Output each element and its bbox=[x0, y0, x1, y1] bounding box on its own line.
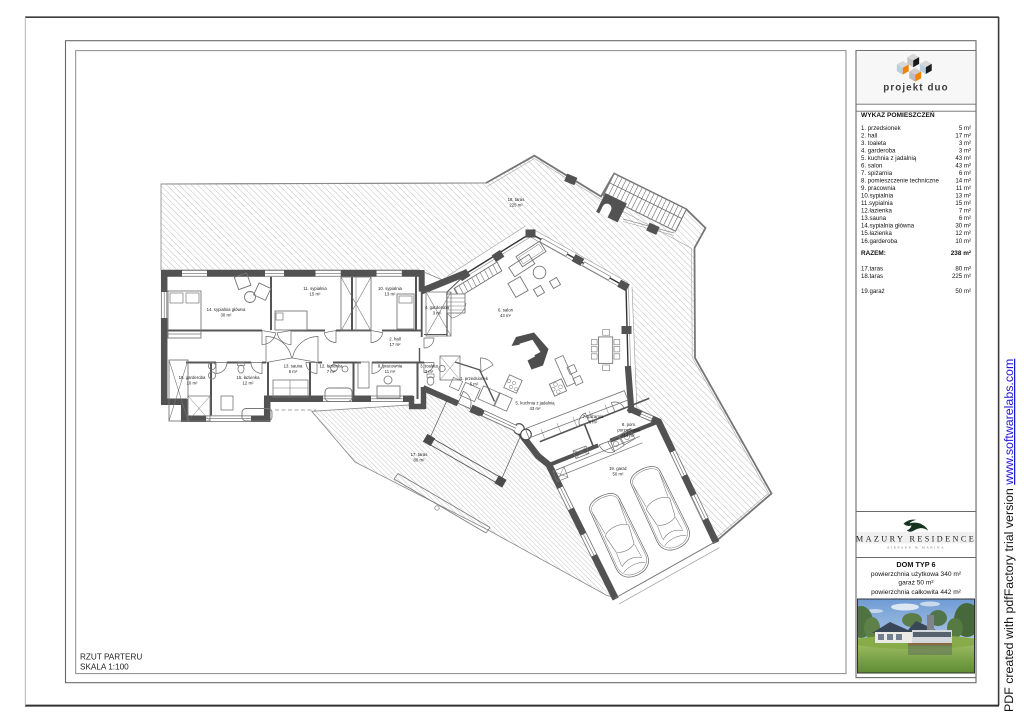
svg-text:5. kuchnia z jadalnią: 5. kuchnia z jadalnią bbox=[861, 155, 917, 162]
svg-text:6. salon: 6. salon bbox=[498, 308, 514, 313]
svg-text:2. hall: 2. hall bbox=[861, 132, 877, 139]
svg-text:43 m²: 43 m² bbox=[955, 163, 971, 170]
svg-text:12 m²: 12 m² bbox=[955, 230, 971, 237]
svg-text:AIRPARK & MARINA: AIRPARK & MARINA bbox=[887, 546, 945, 550]
svg-text:WYKAZ POMIESZCZEŃ: WYKAZ POMIESZCZEŃ bbox=[861, 110, 935, 119]
svg-text:powierzchnia użytkowa 340 m²: powierzchnia użytkowa 340 m² bbox=[871, 571, 962, 578]
svg-text:43 m²: 43 m² bbox=[500, 313, 512, 318]
svg-text:15 m²: 15 m² bbox=[310, 291, 322, 296]
svg-text:43 m²: 43 m² bbox=[955, 155, 971, 162]
svg-text:10 m²: 10 m² bbox=[187, 380, 199, 385]
svg-text:17 m²: 17 m² bbox=[390, 342, 402, 347]
svg-text:5 m²: 5 m² bbox=[470, 381, 479, 386]
svg-text:17 m²: 17 m² bbox=[955, 132, 971, 139]
svg-text:17. taras: 17. taras bbox=[411, 452, 428, 457]
svg-text:19.garaż: 19.garaż bbox=[861, 288, 885, 295]
svg-text:8. pomieszczenie techniczne: 8. pomieszczenie techniczne bbox=[861, 178, 940, 185]
svg-text:14 m²: 14 m² bbox=[624, 433, 636, 438]
svg-text:15.łazienka: 15.łazienka bbox=[861, 230, 892, 237]
svg-text:projekt duo: projekt duo bbox=[883, 83, 948, 94]
svg-text:10 m²: 10 m² bbox=[955, 238, 971, 245]
svg-text:2. hall: 2. hall bbox=[389, 337, 401, 342]
svg-text:12.łazienka: 12.łazienka bbox=[861, 208, 892, 215]
svg-text:3 m²: 3 m² bbox=[959, 140, 971, 147]
svg-text:6 m²: 6 m² bbox=[589, 419, 598, 424]
svg-text:RAZEM:: RAZEM: bbox=[861, 250, 886, 257]
svg-text:225 m²: 225 m² bbox=[952, 273, 971, 280]
svg-text:18.taras: 18.taras bbox=[861, 273, 883, 280]
svg-text:14 m²: 14 m² bbox=[955, 178, 971, 185]
svg-text:18. taras: 18. taras bbox=[508, 197, 525, 202]
svg-text:SKALA 1:100: SKALA 1:100 bbox=[80, 663, 129, 672]
svg-text:80 m²: 80 m² bbox=[955, 266, 971, 273]
svg-text:11 m²: 11 m² bbox=[956, 185, 971, 192]
svg-text:16.garderoba: 16.garderoba bbox=[861, 238, 898, 245]
svg-text:PDF created with pdfFactory tr: PDF created with pdfFactory trial versio… bbox=[1002, 359, 1016, 712]
svg-text:17.taras: 17.taras bbox=[861, 266, 883, 273]
svg-text:powierzchnia całkowita 442 m²: powierzchnia całkowita 442 m² bbox=[871, 589, 962, 596]
svg-text:porządkowe: porządkowe bbox=[617, 427, 641, 432]
svg-text:13. sauna: 13. sauna bbox=[284, 364, 303, 369]
svg-text:50 m²: 50 m² bbox=[613, 471, 625, 476]
svg-text:5 m²: 5 m² bbox=[959, 125, 971, 132]
svg-text:80 m²: 80 m² bbox=[414, 457, 426, 462]
svg-text:6. salon: 6. salon bbox=[861, 163, 882, 170]
svg-text:4. garderoba: 4. garderoba bbox=[425, 305, 450, 310]
svg-text:7.spiżarnia: 7.spiżarnia bbox=[583, 414, 604, 419]
svg-text:15. łazienka: 15. łazienka bbox=[237, 375, 261, 380]
svg-text:8. pom.: 8. pom. bbox=[622, 422, 636, 427]
svg-text:1. przedsionek: 1. przedsionek bbox=[861, 125, 902, 132]
svg-text:13 m²: 13 m² bbox=[955, 193, 971, 200]
svg-text:14. sypialnia główna: 14. sypialnia główna bbox=[207, 307, 246, 312]
svg-text:16. garderoba: 16. garderoba bbox=[179, 375, 206, 380]
svg-text:43 m²: 43 m² bbox=[530, 406, 542, 411]
svg-text:238 m²: 238 m² bbox=[951, 250, 971, 257]
svg-text:3. toaleta: 3. toaleta bbox=[861, 140, 887, 147]
svg-text:13.sauna: 13.sauna bbox=[861, 215, 887, 222]
svg-text:DOM TYP 6: DOM TYP 6 bbox=[896, 560, 935, 569]
svg-text:7. spiżarnia: 7. spiżarnia bbox=[861, 170, 893, 177]
svg-text:3. toaleta: 3. toaleta bbox=[420, 364, 438, 369]
svg-text:5. kuchnia z jadalnią: 5. kuchnia z jadalnią bbox=[516, 401, 556, 406]
svg-text:225 m²: 225 m² bbox=[509, 202, 523, 207]
svg-text:12. łazienka: 12. łazienka bbox=[320, 364, 344, 369]
svg-text:11 m²: 11 m² bbox=[385, 369, 396, 374]
svg-text:10.sypialnia: 10.sypialnia bbox=[861, 193, 894, 200]
svg-text:50 m²: 50 m² bbox=[955, 288, 971, 295]
svg-text:15 m²: 15 m² bbox=[955, 200, 971, 207]
svg-text:4. garderoba: 4. garderoba bbox=[861, 147, 896, 154]
svg-text:11. sypialnia: 11. sypialnia bbox=[303, 286, 327, 291]
svg-text:30 m²: 30 m² bbox=[955, 223, 971, 230]
svg-text:3 m²: 3 m² bbox=[425, 369, 434, 374]
svg-text:RZUT PARTERU: RZUT PARTERU bbox=[80, 653, 142, 662]
svg-text:6 m²: 6 m² bbox=[959, 170, 971, 177]
svg-text:MAZURY RESIDENCE: MAZURY RESIDENCE bbox=[856, 535, 976, 544]
svg-text:3 m²: 3 m² bbox=[959, 147, 971, 154]
svg-text:7 m²: 7 m² bbox=[959, 208, 971, 215]
svg-text:11.sypialnia: 11.sypialnia bbox=[861, 200, 893, 207]
svg-text:9. pracownia: 9. pracownia bbox=[378, 364, 403, 369]
svg-text:3 m²: 3 m² bbox=[433, 310, 442, 315]
svg-text:14.sypialnia główna: 14.sypialnia główna bbox=[861, 223, 915, 230]
svg-text:12 m²: 12 m² bbox=[243, 380, 255, 385]
svg-text:13 m²: 13 m² bbox=[385, 291, 397, 296]
svg-text:6 m²: 6 m² bbox=[289, 369, 298, 374]
svg-text:10. sypialnia: 10. sypialnia bbox=[378, 286, 402, 291]
svg-text:6 m²: 6 m² bbox=[959, 215, 971, 222]
svg-text:garaż 50 m²: garaż 50 m² bbox=[898, 580, 934, 587]
svg-text:19. garaż: 19. garaż bbox=[609, 466, 627, 471]
svg-text:7 m²: 7 m² bbox=[327, 369, 336, 374]
svg-text:30 m²: 30 m² bbox=[221, 312, 233, 317]
svg-text:1. przedsionek: 1. przedsionek bbox=[460, 376, 489, 381]
svg-text:9. pracownia: 9. pracownia bbox=[861, 185, 896, 192]
